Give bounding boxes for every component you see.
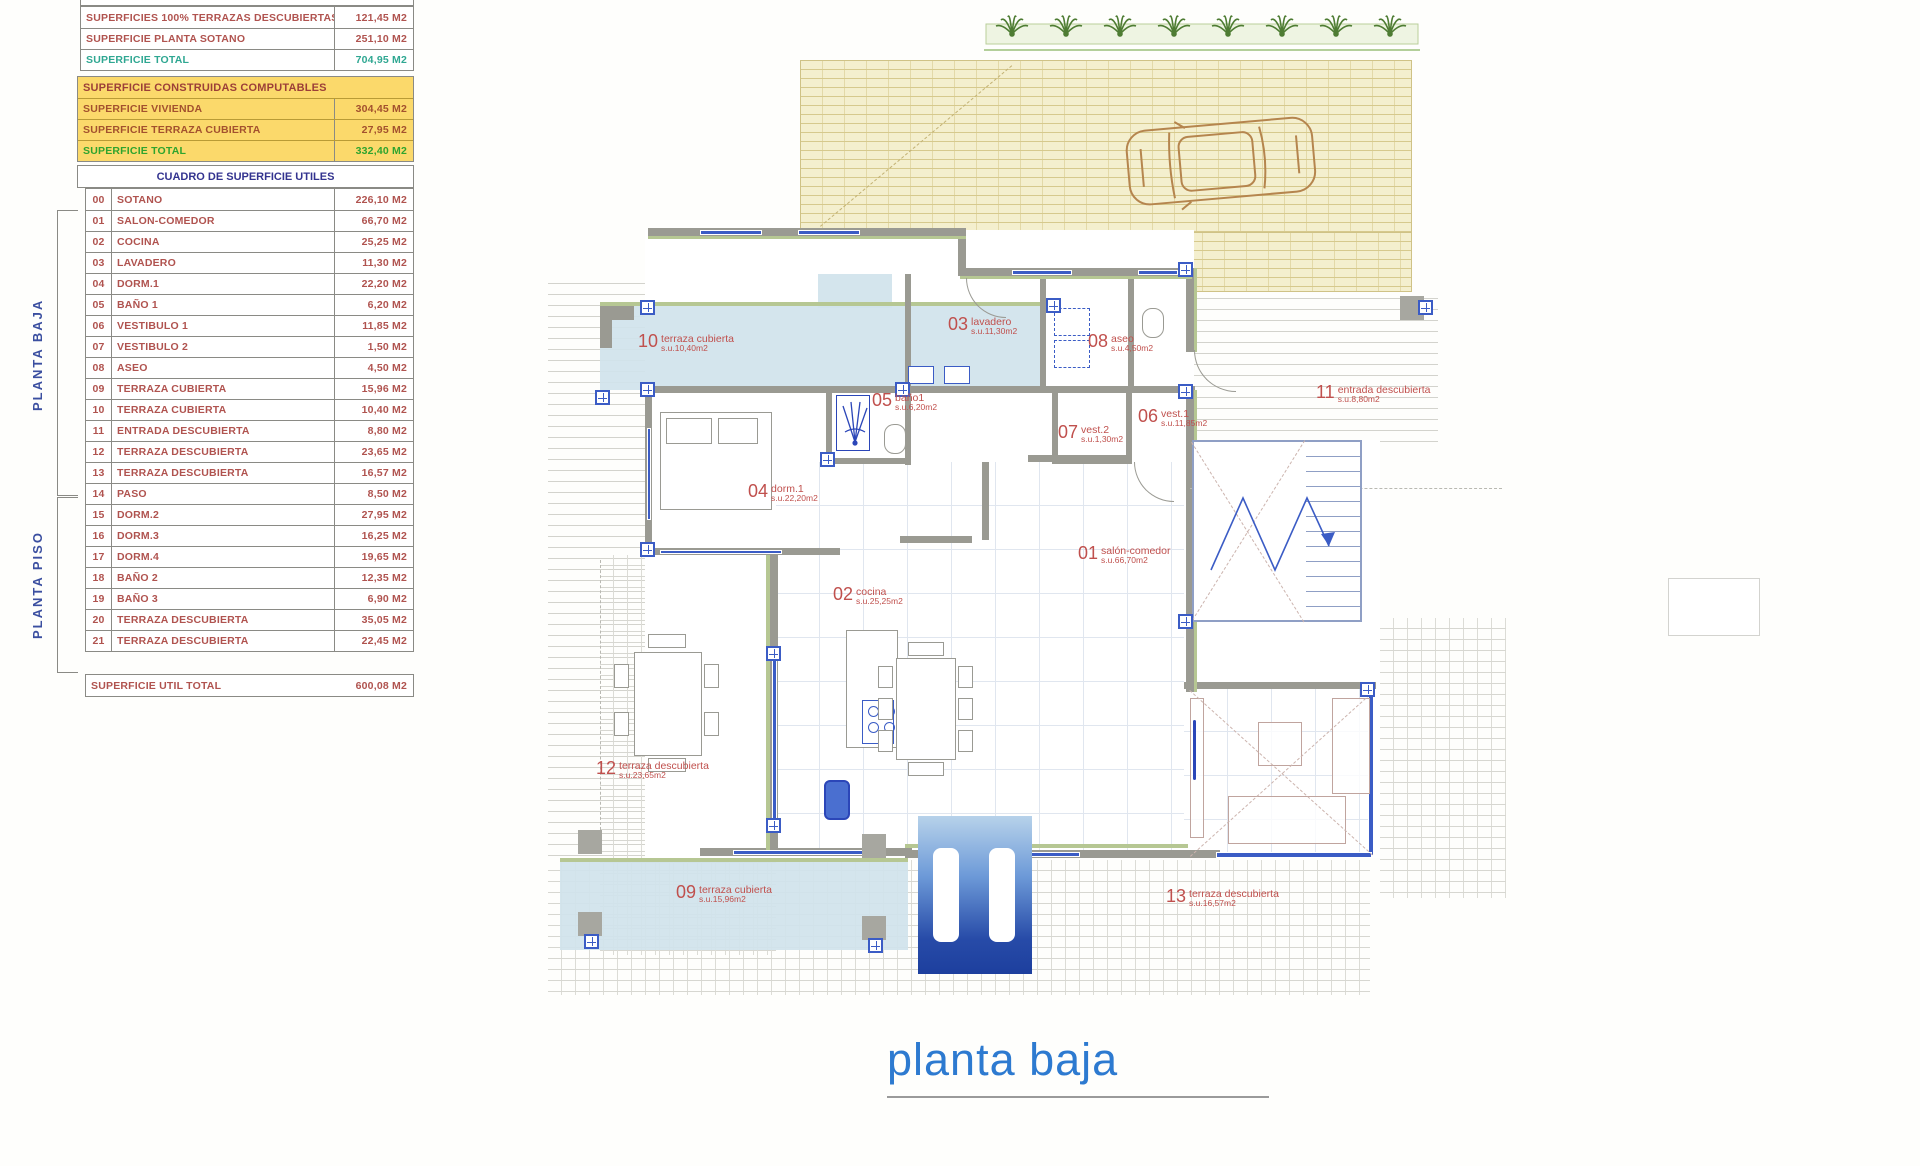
outdoor-chair bbox=[614, 712, 629, 736]
wall bbox=[905, 386, 1195, 393]
dining-chair bbox=[958, 666, 973, 688]
room-area: s.u.25,25m2 bbox=[856, 597, 903, 606]
room-number: 02 bbox=[833, 586, 853, 602]
floor-plan: 01 salón-comedor s.u.66,70m202 cocina s.… bbox=[0, 0, 1920, 1166]
room-label-05: 05 baño1 s.u.6,20m2 bbox=[872, 392, 937, 412]
corner-post bbox=[862, 916, 886, 940]
dryer bbox=[1054, 340, 1090, 368]
room-label-04: 04 dorm.1 s.u.22,20m2 bbox=[748, 483, 818, 503]
column-marker bbox=[766, 818, 781, 833]
wall bbox=[826, 393, 832, 461]
wall bbox=[1184, 850, 1220, 858]
outdoor-chair bbox=[704, 664, 719, 688]
title-underline bbox=[887, 1096, 1269, 1098]
room-number: 11 bbox=[1316, 384, 1335, 400]
sink bbox=[908, 366, 934, 384]
room-area: s.u.11,85m2 bbox=[1161, 419, 1207, 428]
room-area: s.u.66,70m2 bbox=[1101, 556, 1170, 565]
sofa bbox=[1228, 796, 1346, 844]
corner-post bbox=[578, 912, 602, 936]
sheet-title: planta baja bbox=[887, 1034, 1118, 1086]
room-area: s.u.15,96m2 bbox=[699, 895, 772, 904]
room-label-03: 03 lavadero s.u.11,30m2 bbox=[948, 316, 1017, 336]
room-area: s.u.10,40m2 bbox=[661, 344, 734, 353]
dining-chair bbox=[958, 730, 973, 752]
empty-legend-box bbox=[1668, 578, 1760, 636]
wall bbox=[1040, 274, 1046, 392]
wall bbox=[600, 306, 612, 348]
room-number: 08 bbox=[1088, 333, 1108, 349]
window bbox=[647, 428, 651, 520]
column-marker bbox=[766, 646, 781, 661]
window bbox=[772, 650, 777, 822]
window bbox=[798, 230, 860, 235]
column-marker bbox=[640, 542, 655, 557]
room-number: 01 bbox=[1078, 545, 1098, 561]
stairs-direction-arrow bbox=[1205, 470, 1345, 590]
column-marker bbox=[584, 934, 599, 949]
room-number: 06 bbox=[1138, 408, 1158, 424]
dining-table bbox=[896, 658, 956, 760]
bed-pillow bbox=[718, 418, 758, 444]
wall bbox=[1028, 455, 1132, 462]
wall bbox=[1184, 682, 1376, 689]
pool-step bbox=[933, 848, 959, 942]
room-number: 07 bbox=[1058, 424, 1078, 440]
toilet bbox=[884, 424, 906, 454]
room-number: 10 bbox=[638, 333, 658, 349]
dining-chair bbox=[878, 730, 893, 752]
wall-accent bbox=[648, 236, 966, 239]
bed-pillow bbox=[666, 418, 712, 444]
terrace-09-fill bbox=[560, 862, 908, 950]
drawing-sheet: SUPERFICIES 100% TERRAZAS DESCUBIERTAS12… bbox=[0, 0, 1920, 1166]
room-label-13: 13 terraza descubierta s.u.16,57m2 bbox=[1166, 888, 1279, 908]
outdoor-chair bbox=[614, 664, 629, 688]
room-area: s.u.4,50m2 bbox=[1111, 344, 1153, 353]
column-marker bbox=[1178, 384, 1193, 399]
wall bbox=[1126, 393, 1132, 463]
sink bbox=[944, 366, 970, 384]
column-marker bbox=[640, 300, 655, 315]
column-marker bbox=[1178, 262, 1193, 277]
outdoor-shower bbox=[824, 780, 850, 820]
column-marker bbox=[1360, 682, 1375, 697]
column-marker bbox=[868, 938, 883, 953]
dashed-terrace-boundary bbox=[600, 560, 601, 830]
outdoor-chair bbox=[648, 634, 686, 648]
corner-post bbox=[862, 834, 886, 858]
room-label-12: 12 terraza descubierta s.u.23,65m2 bbox=[596, 760, 709, 780]
column-marker bbox=[820, 452, 835, 467]
column-marker bbox=[1046, 298, 1061, 313]
column-marker bbox=[1178, 614, 1193, 629]
room-label-10: 10 terraza cubierta s.u.10,40m2 bbox=[638, 333, 734, 353]
tv-screen bbox=[1193, 720, 1196, 780]
window bbox=[700, 230, 762, 235]
wall-accent bbox=[1194, 268, 1197, 352]
wall-accent bbox=[766, 555, 770, 855]
room-label-11: 11 entrada descubierta s.u.8,80m2 bbox=[1316, 384, 1431, 404]
outdoor-table bbox=[634, 652, 702, 756]
chaise bbox=[1332, 698, 1370, 794]
column-marker bbox=[595, 390, 610, 405]
room-number: 13 bbox=[1166, 888, 1186, 904]
window bbox=[1012, 270, 1072, 275]
room-number: 05 bbox=[872, 392, 892, 408]
dining-chair bbox=[878, 666, 893, 688]
dining-chair bbox=[878, 698, 893, 720]
pool-step bbox=[989, 848, 1015, 942]
room-number: 03 bbox=[948, 316, 968, 332]
room-label-09: 09 terraza cubierta s.u.15,96m2 bbox=[676, 884, 772, 904]
room-number: 09 bbox=[676, 884, 696, 900]
window bbox=[1216, 852, 1372, 858]
room-area: s.u.23,65m2 bbox=[619, 771, 709, 780]
room-number: 12 bbox=[596, 760, 616, 776]
hedge-band bbox=[986, 24, 1418, 44]
dining-chair bbox=[908, 762, 944, 776]
dining-chair bbox=[908, 642, 944, 656]
room-label-08: 08 aseo s.u.4,50m2 bbox=[1088, 333, 1153, 353]
room-label-01: 01 salón-comedor s.u.66,70m2 bbox=[1078, 545, 1170, 565]
wall bbox=[826, 458, 911, 464]
room-area: s.u.22,20m2 bbox=[771, 494, 818, 503]
room-area: s.u.1,30m2 bbox=[1081, 435, 1123, 444]
palm-trees-row bbox=[984, 4, 1420, 54]
room-label-02: 02 cocina s.u.25,25m2 bbox=[833, 586, 903, 606]
corner-post bbox=[578, 830, 602, 854]
dining-chair bbox=[958, 698, 973, 720]
column-marker bbox=[1418, 300, 1433, 315]
room-label-07: 07 vest.2 s.u.1,30m2 bbox=[1058, 424, 1123, 444]
car-icon bbox=[1118, 103, 1326, 220]
window bbox=[660, 550, 782, 554]
room-label-06: 06 vest.1 s.u.11,85m2 bbox=[1138, 408, 1207, 428]
window bbox=[1138, 270, 1178, 275]
shower-icon bbox=[838, 398, 872, 450]
window bbox=[733, 850, 865, 855]
room-area: s.u.11,30m2 bbox=[971, 327, 1017, 336]
room-area: s.u.8,80m2 bbox=[1338, 395, 1431, 404]
roof-edge-accent bbox=[560, 858, 908, 862]
wall bbox=[1186, 268, 1194, 352]
outdoor-chair bbox=[704, 712, 719, 736]
room-area: s.u.16,57m2 bbox=[1189, 899, 1279, 908]
paving-right bbox=[1380, 618, 1506, 898]
wall bbox=[982, 462, 989, 540]
wall bbox=[900, 536, 972, 543]
room-number: 04 bbox=[748, 483, 768, 499]
room-area: s.u.6,20m2 bbox=[895, 403, 937, 412]
column-marker bbox=[640, 382, 655, 397]
